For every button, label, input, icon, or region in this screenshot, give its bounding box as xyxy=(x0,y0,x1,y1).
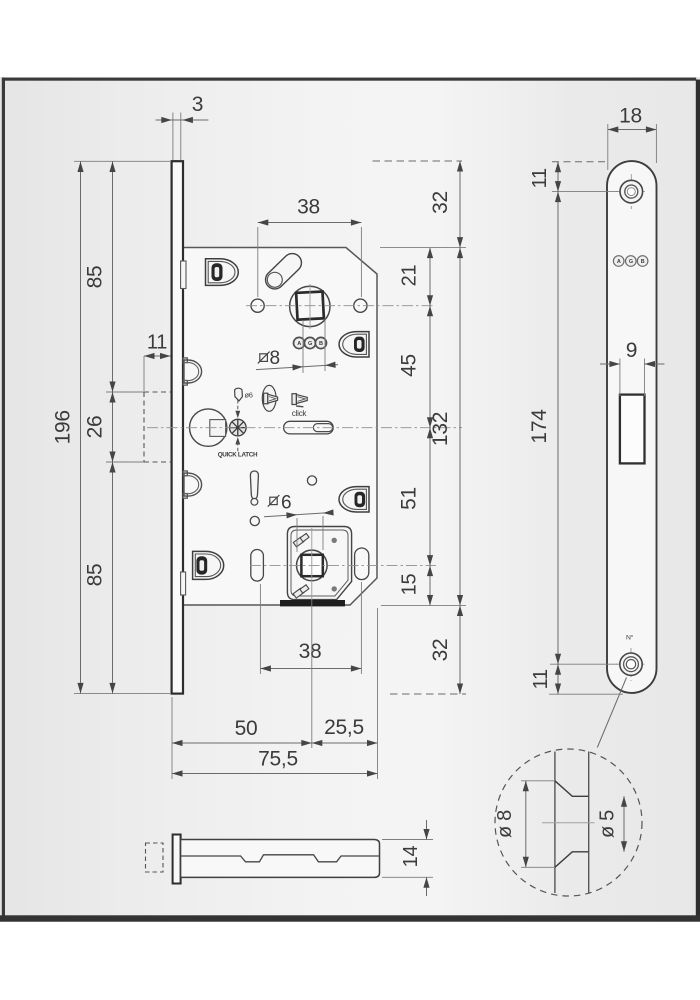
svg-text:G: G xyxy=(308,341,312,347)
svg-text:38: 38 xyxy=(297,196,320,219)
svg-text:174: 174 xyxy=(528,409,551,444)
svg-text:A: A xyxy=(617,259,621,265)
svg-text:11: 11 xyxy=(529,168,551,188)
svg-text:ø 8: ø 8 xyxy=(494,810,516,838)
svg-text:6: 6 xyxy=(281,493,291,514)
svg-text:11: 11 xyxy=(147,332,167,354)
svg-text:14: 14 xyxy=(400,846,422,868)
svg-text:ø6: ø6 xyxy=(245,390,253,399)
svg-text:9: 9 xyxy=(626,339,637,362)
svg-text:26: 26 xyxy=(84,416,107,439)
svg-text:75,5: 75,5 xyxy=(258,748,298,771)
svg-text:15: 15 xyxy=(399,574,421,596)
svg-text:38: 38 xyxy=(299,640,322,663)
svg-text:A: A xyxy=(297,341,301,347)
svg-text:45: 45 xyxy=(398,354,421,377)
svg-text:25,5: 25,5 xyxy=(324,716,364,739)
svg-text:85: 85 xyxy=(84,266,107,289)
svg-text:8: 8 xyxy=(270,348,280,369)
svg-text:32: 32 xyxy=(429,191,452,214)
svg-text:51: 51 xyxy=(398,487,421,510)
svg-text:B: B xyxy=(319,341,323,347)
svg-text:21: 21 xyxy=(399,265,421,287)
svg-text:196: 196 xyxy=(52,410,75,444)
svg-text:ø 5: ø 5 xyxy=(597,810,619,838)
svg-text:11: 11 xyxy=(530,669,552,689)
svg-text:B: B xyxy=(641,259,645,265)
svg-text:N°: N° xyxy=(626,634,634,642)
svg-text:85: 85 xyxy=(84,564,107,587)
svg-text:QUICK LATCH: QUICK LATCH xyxy=(218,452,258,459)
svg-text:3: 3 xyxy=(192,93,203,116)
svg-text:32: 32 xyxy=(429,639,452,662)
svg-text:18: 18 xyxy=(619,105,642,128)
svg-text:132: 132 xyxy=(429,412,452,446)
svg-text:click: click xyxy=(292,409,308,418)
svg-text:G: G xyxy=(629,259,633,265)
svg-text:50: 50 xyxy=(235,717,258,740)
